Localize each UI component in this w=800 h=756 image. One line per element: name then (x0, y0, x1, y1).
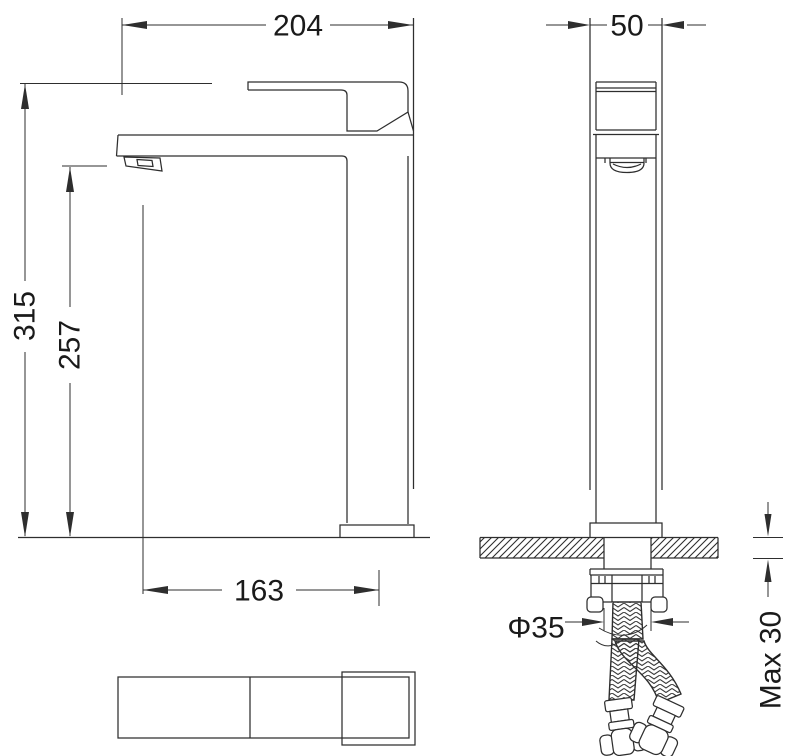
front-lever-tip-edge (408, 112, 414, 131)
countertop-hatch-left (480, 538, 604, 558)
arrowhead-left (662, 21, 684, 29)
total-height-label: 315 (9, 291, 42, 341)
hose-left (609, 639, 639, 700)
arrowhead-up (21, 84, 29, 109)
dimension-depth: 50 (546, 10, 706, 43)
side-view (480, 18, 718, 756)
arrowhead-right (354, 586, 379, 594)
arrowhead-down (765, 514, 772, 537)
supply-hoses (594, 602, 692, 756)
front-base-plate (340, 525, 414, 537)
front-spout-bottom-and-column-left (117, 156, 348, 523)
aerator-side (610, 158, 644, 173)
top-view (118, 672, 415, 745)
spout-reach-label: 163 (234, 575, 284, 608)
side-handle-block (593, 82, 659, 135)
hose-bundle-top (612, 602, 643, 639)
arrowhead-left (651, 618, 673, 626)
faucet-dimension-drawing: 204 315 257 163 50 Φ35 (0, 0, 800, 756)
dimension-max-thickness: Max 30 (753, 502, 788, 709)
arrowhead-down (66, 512, 74, 537)
arrowhead-up (66, 167, 74, 192)
side-base-plate (590, 523, 662, 537)
arrowhead-down (21, 512, 29, 537)
hole-diameter-label: Φ35 (507, 612, 564, 645)
countertop-hatch-right (651, 538, 718, 558)
top-view-handle-plate (342, 672, 415, 745)
front-spout-left-edge (117, 135, 119, 156)
arrowhead-left (143, 586, 168, 594)
dimension-hole-diameter: Φ35 (507, 608, 689, 645)
top-view-spout-body (118, 677, 409, 738)
mounting-washer (590, 569, 663, 575)
aerator-front-insert (137, 160, 153, 167)
front-lever-handle (248, 82, 408, 131)
total-width-label: 204 (273, 10, 323, 43)
aerator-front (124, 157, 162, 171)
dimension-total-height: 315 (9, 84, 213, 538)
arrowhead-left (122, 21, 147, 29)
front-view (18, 18, 430, 594)
arrowhead-right (582, 618, 604, 626)
depth-label: 50 (610, 10, 643, 43)
dimension-spout-reach: 163 (143, 570, 379, 608)
arrowhead-right (388, 21, 413, 29)
arrowhead-right (568, 21, 590, 29)
dimension-spout-height: 257 (54, 166, 108, 537)
countertop-section (480, 538, 718, 559)
arrowhead-up (765, 560, 772, 583)
spout-height-label: 257 (54, 320, 87, 370)
technical-drawing-canvas: 204 315 257 163 50 Φ35 (0, 0, 800, 756)
max-thickness-label: Max 30 (755, 611, 788, 709)
